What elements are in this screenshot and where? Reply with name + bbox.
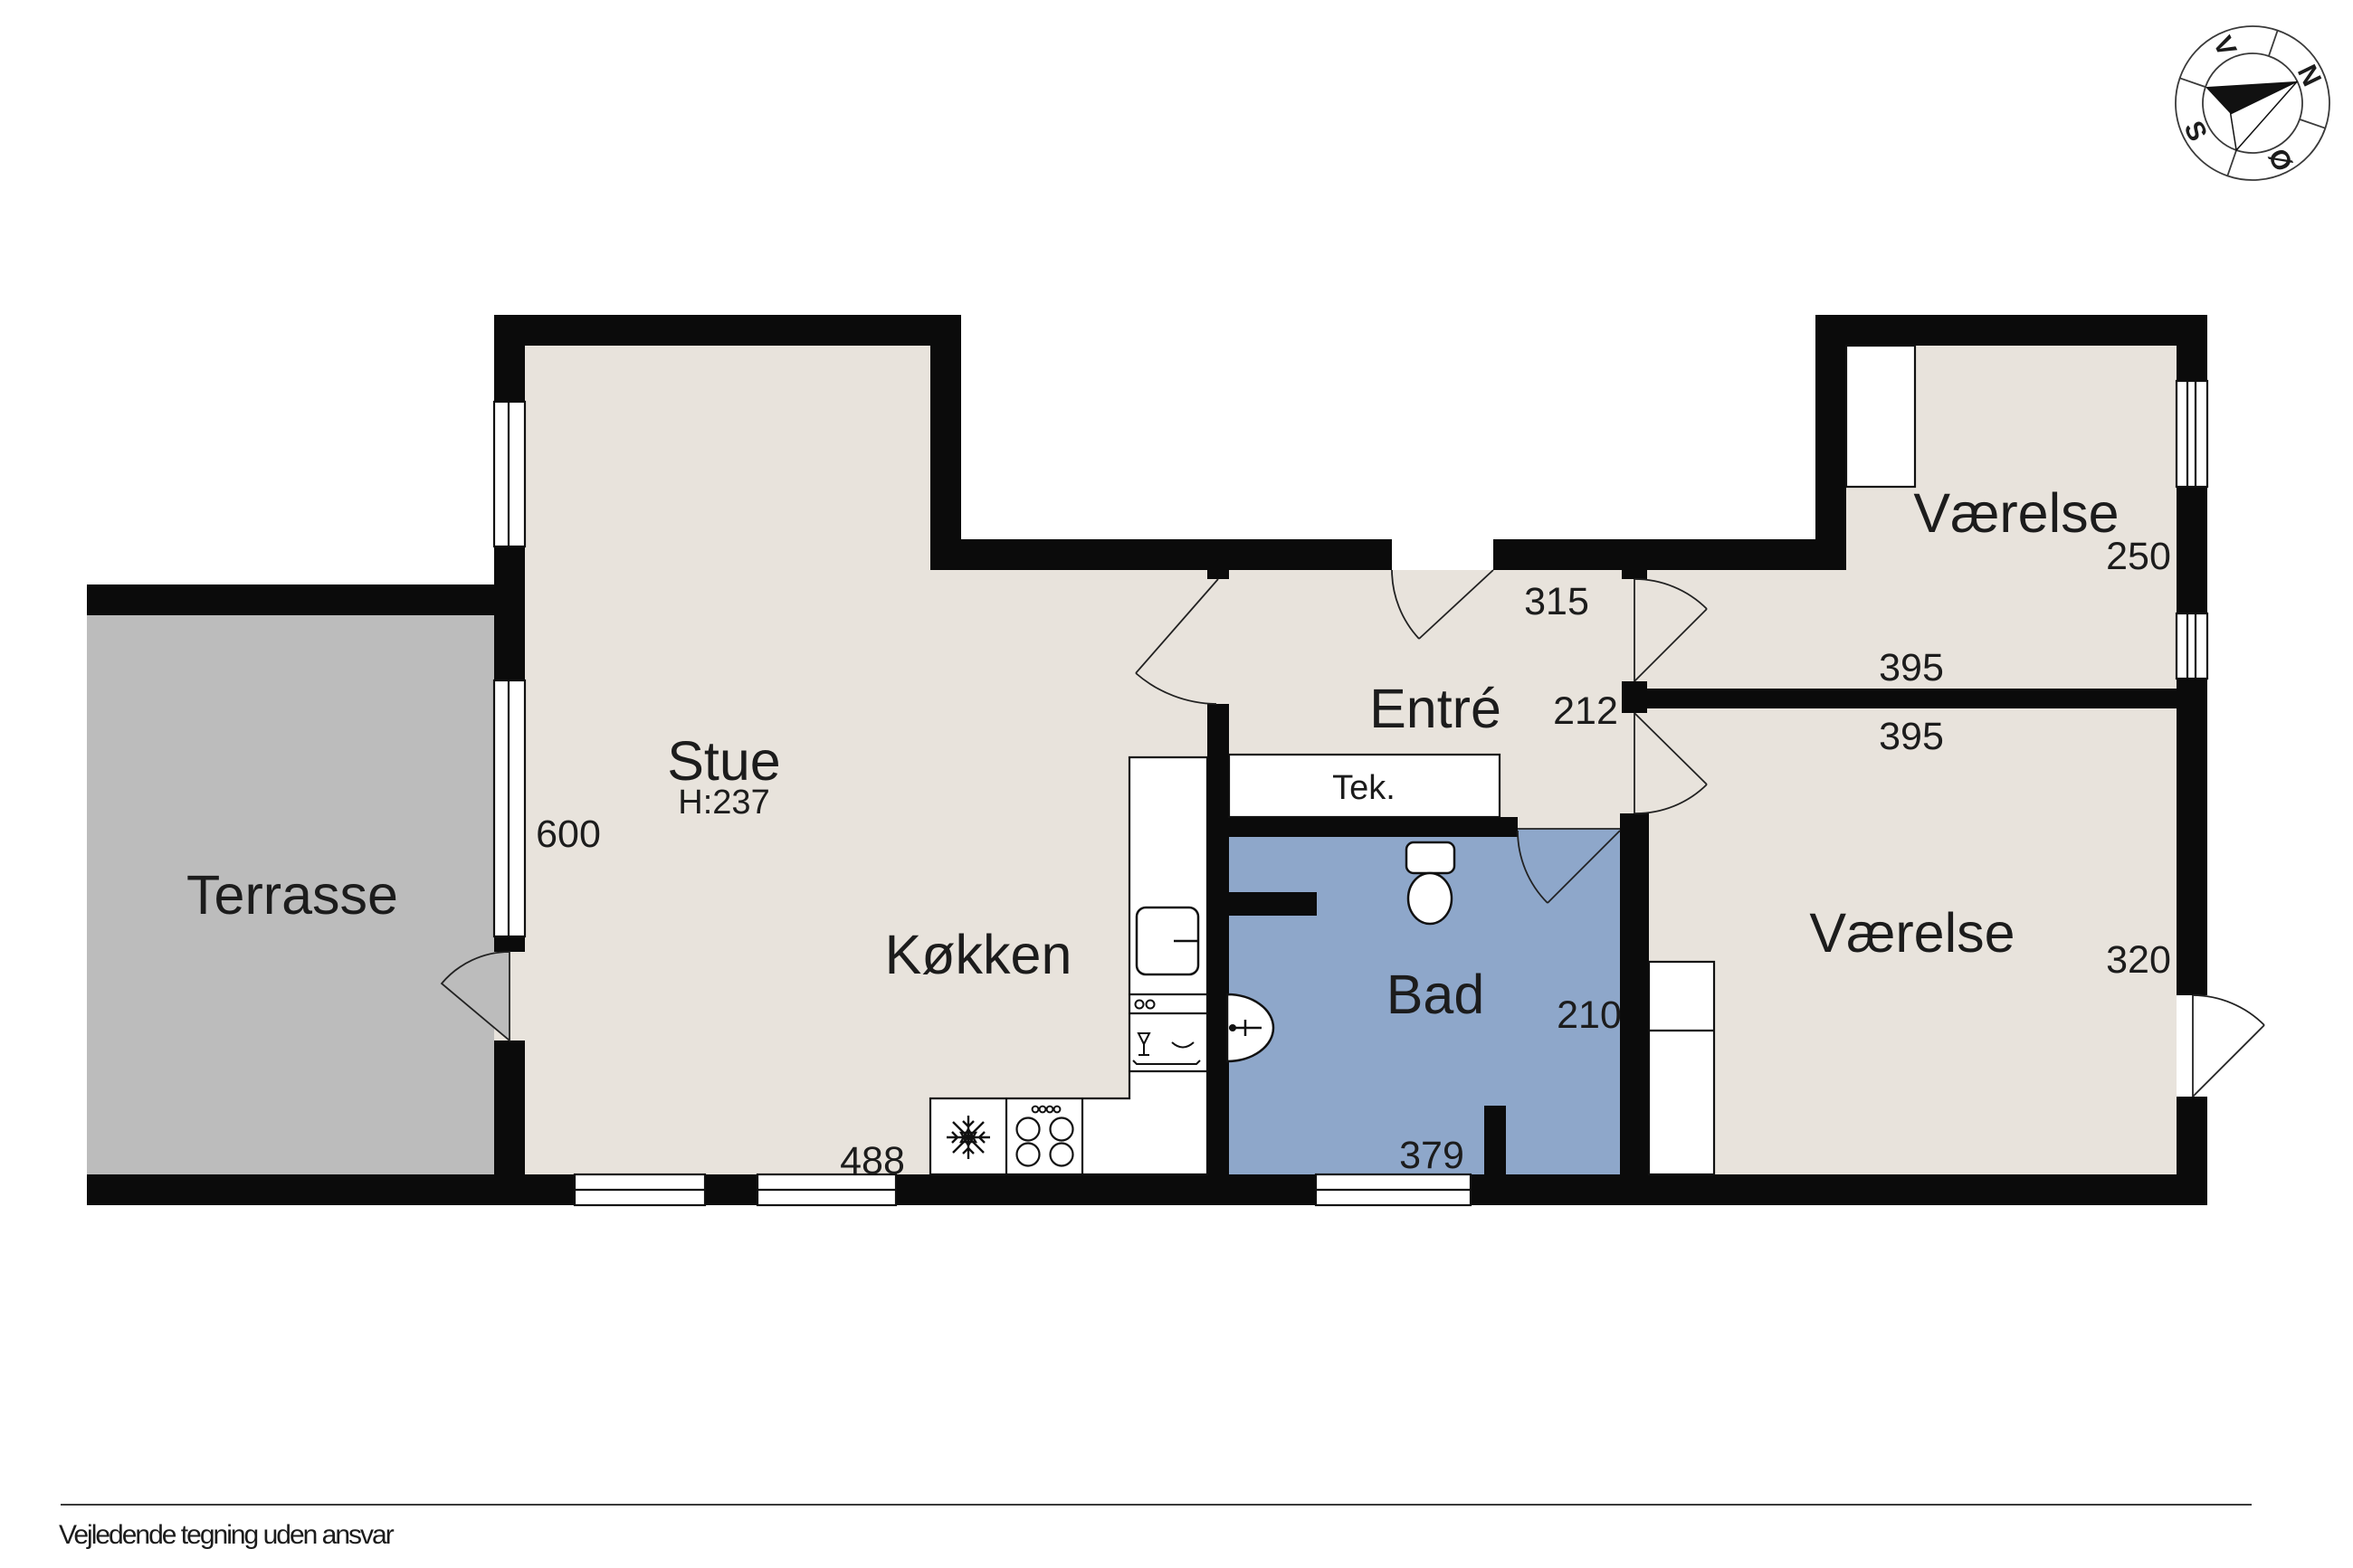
svg-text:H:237: H:237	[678, 784, 769, 822]
svg-text:Værelse: Værelse	[1809, 902, 2015, 964]
svg-text:Værelse: Værelse	[1913, 482, 2119, 544]
svg-text:Køkken: Køkken	[885, 924, 1072, 985]
svg-text:395: 395	[1879, 715, 1944, 758]
svg-text:320: 320	[2106, 938, 2171, 982]
svg-text:Vejledende tegning uden ansvar: Vejledende tegning uden ansvar	[59, 1520, 395, 1550]
svg-text:250: 250	[2106, 535, 2171, 578]
svg-text:212: 212	[1553, 689, 1618, 733]
svg-text:Terrasse: Terrasse	[186, 864, 398, 926]
svg-text:Entré: Entré	[1369, 678, 1501, 739]
svg-text:315: 315	[1524, 580, 1589, 623]
svg-text:210: 210	[1557, 993, 1622, 1037]
svg-text:488: 488	[840, 1139, 905, 1183]
svg-text:Stue: Stue	[667, 730, 781, 792]
svg-text:Bad: Bad	[1386, 964, 1485, 1025]
svg-text:379: 379	[1399, 1134, 1464, 1177]
svg-text:600: 600	[536, 813, 601, 856]
svg-text:Tek.: Tek.	[1332, 769, 1396, 807]
svg-text:395: 395	[1879, 646, 1944, 689]
